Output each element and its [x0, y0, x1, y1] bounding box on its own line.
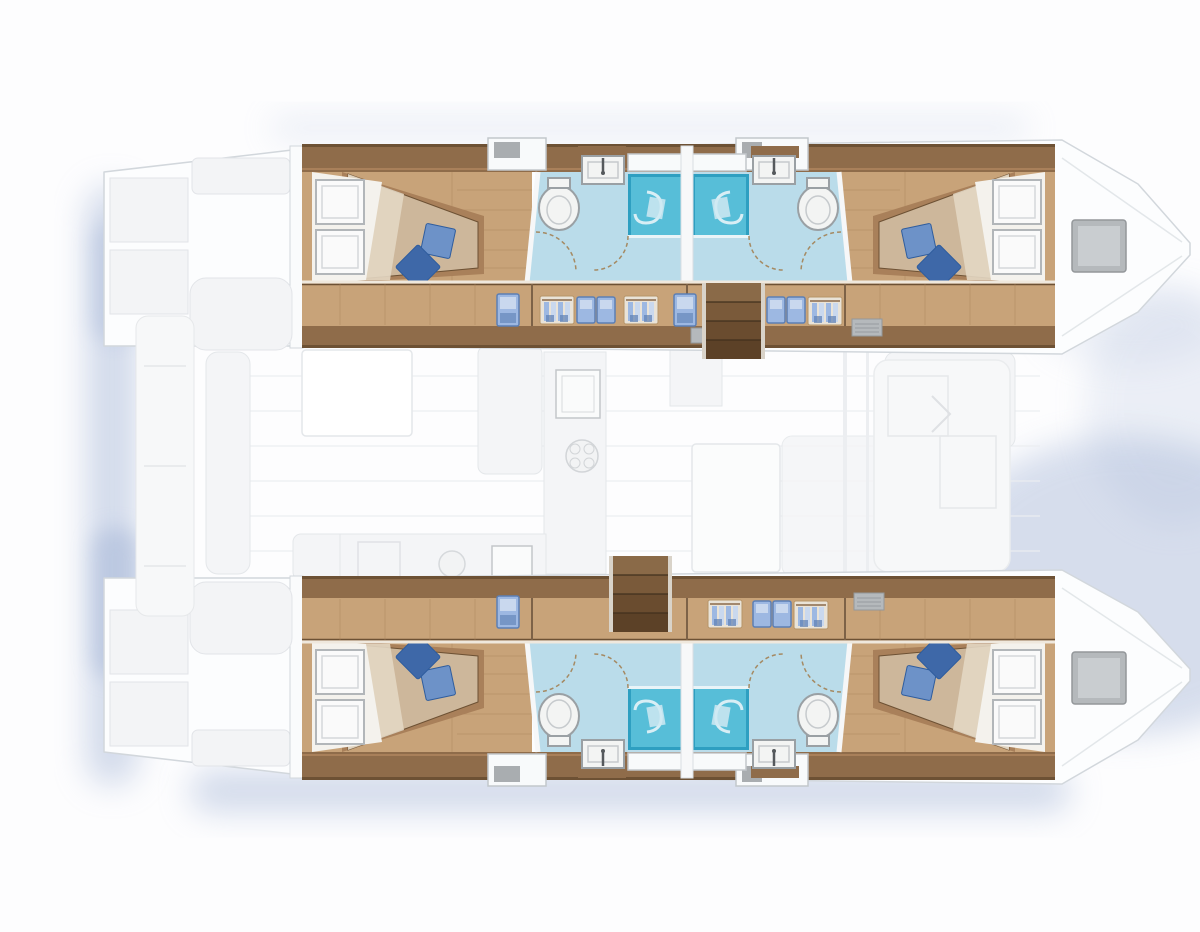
- cockpit-table: [302, 350, 412, 436]
- starboard-companionway-stairs: [609, 556, 672, 632]
- saloon: [206, 346, 1040, 580]
- forward-lounge: [874, 360, 1010, 572]
- cockpit-seat: [478, 346, 542, 474]
- galley-sink: [556, 370, 600, 418]
- plan-canvas: [40, 16, 1200, 916]
- cockpit-bench-left: [206, 352, 250, 574]
- dinette-table: [692, 444, 780, 572]
- galley-stove: [566, 440, 598, 472]
- catamaran-floor-plan: Top-down layout plan of a four-cabin sai…: [40, 16, 1200, 916]
- port-companionway-stairs: [702, 283, 765, 359]
